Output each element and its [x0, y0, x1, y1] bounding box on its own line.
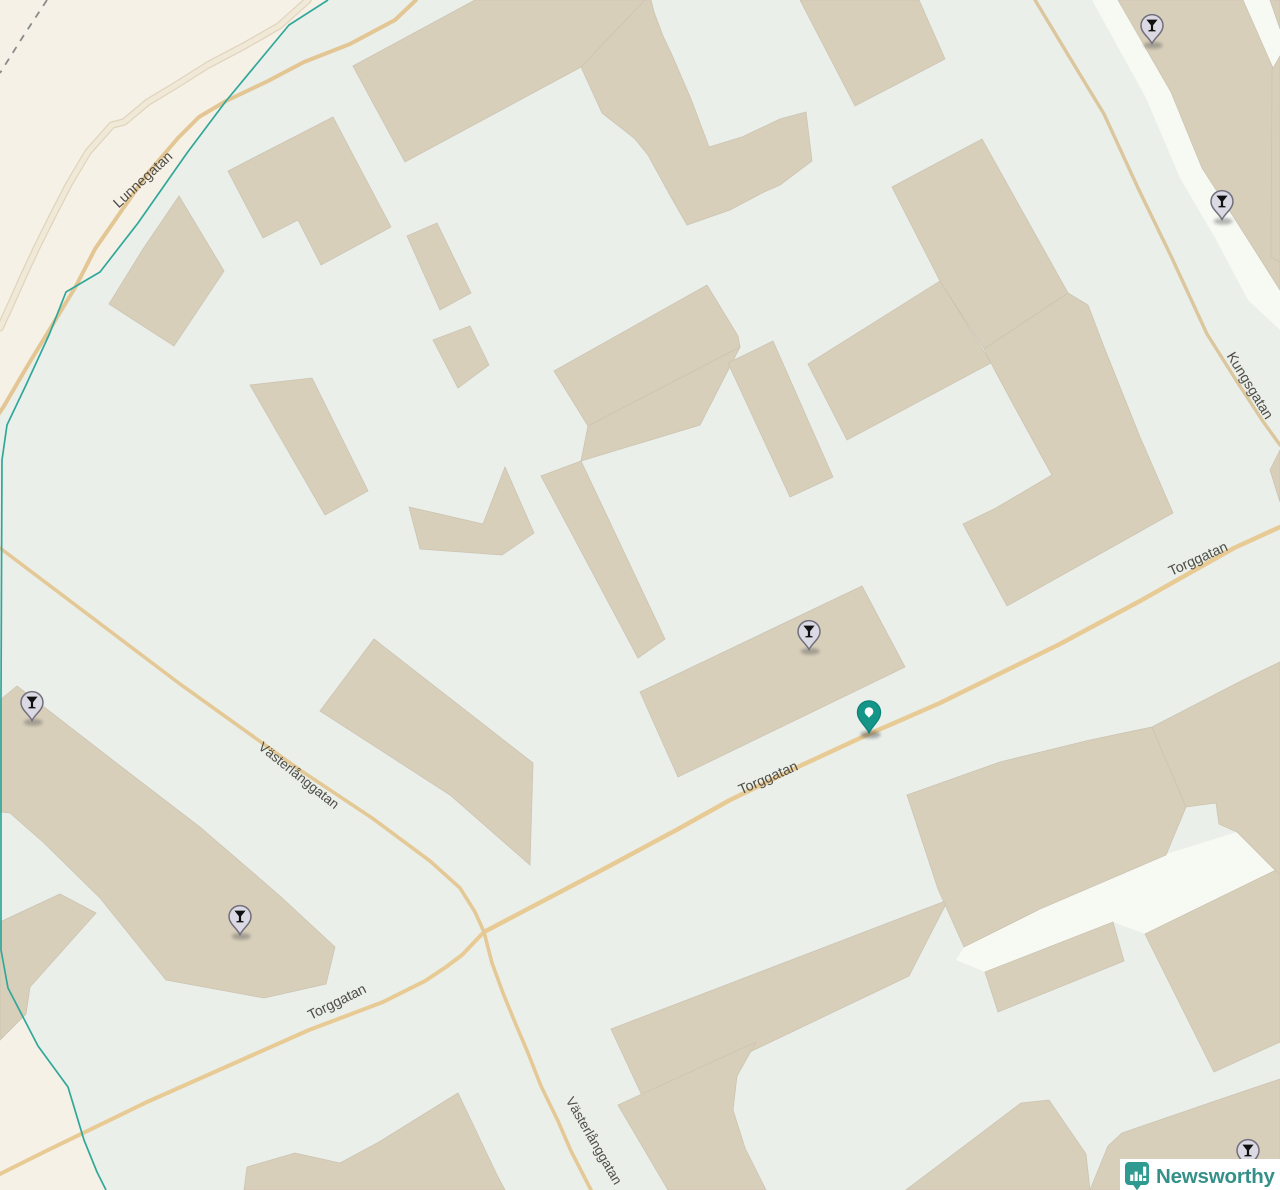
- svg-text:Newsworthy: Newsworthy: [1156, 1165, 1276, 1188]
